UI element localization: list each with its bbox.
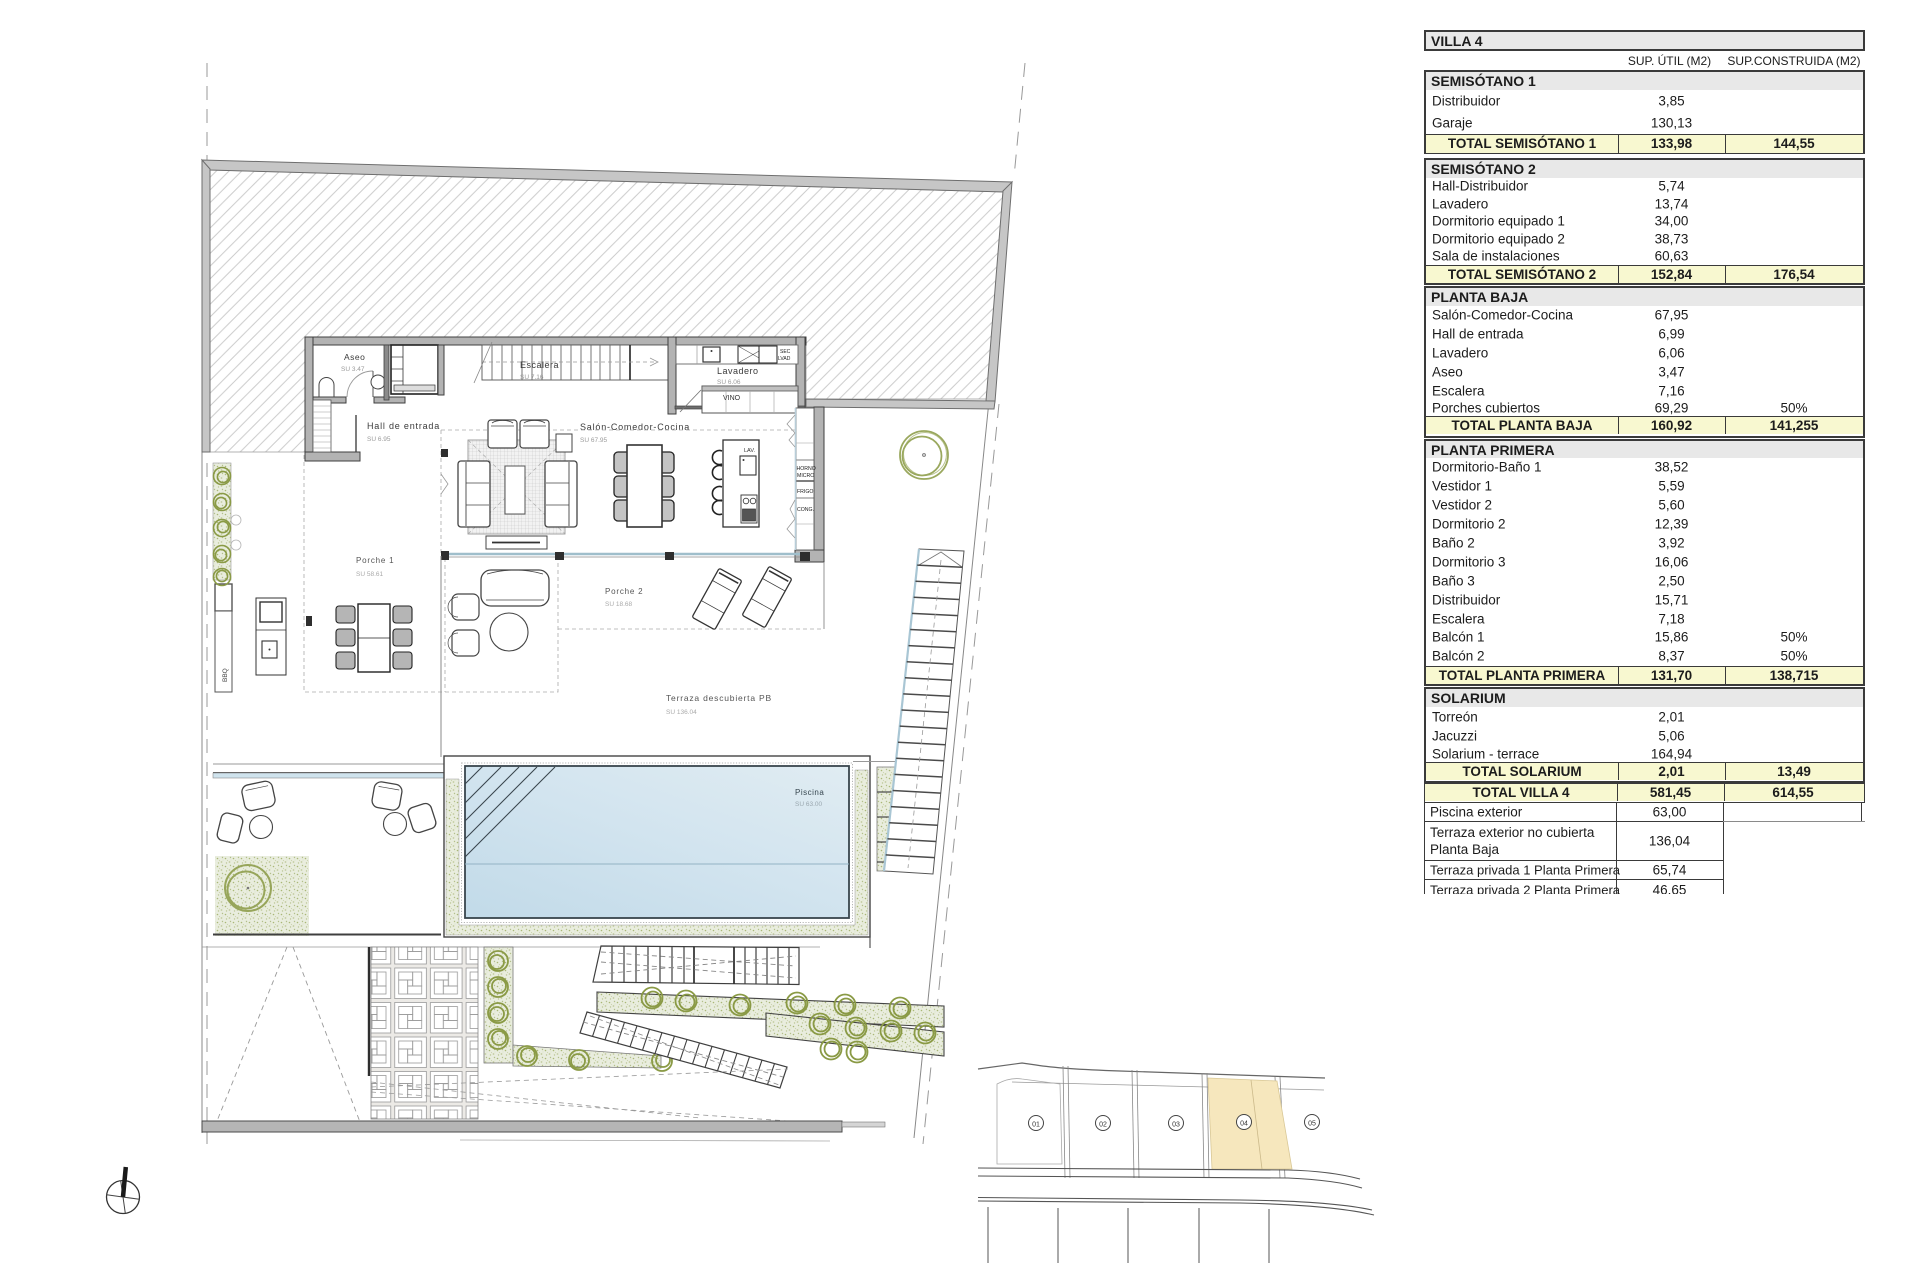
svg-text:SU 18.68: SU 18.68 xyxy=(605,601,632,608)
svg-text:Escalera: Escalera xyxy=(520,360,559,370)
svg-text:LVAD: LVAD xyxy=(778,356,791,362)
svg-text:02: 02 xyxy=(1099,1122,1107,1129)
svg-text:SU 136.04: SU 136.04 xyxy=(666,709,697,716)
svg-text:BBQ: BBQ xyxy=(222,668,229,682)
svg-text:01: 01 xyxy=(1032,1122,1040,1129)
svg-text:LAV.: LAV. xyxy=(744,448,755,454)
svg-text:Piscina: Piscina xyxy=(795,788,824,797)
svg-text:SU 6.06: SU 6.06 xyxy=(717,379,741,386)
svg-text:VINO: VINO xyxy=(723,395,741,402)
svg-text:Porche 1: Porche 1 xyxy=(356,556,394,565)
svg-text:Hall de entrada: Hall de entrada xyxy=(367,421,440,431)
svg-text:SU 58.61: SU 58.61 xyxy=(356,571,383,578)
svg-text:SU 67.95: SU 67.95 xyxy=(580,437,607,444)
svg-text:Aseo: Aseo xyxy=(344,352,365,362)
svg-text:SEC: SEC xyxy=(780,349,791,355)
svg-text:05: 05 xyxy=(1308,1121,1316,1128)
svg-text:SU 6.95: SU 6.95 xyxy=(367,436,391,443)
svg-text:Porche 2: Porche 2 xyxy=(605,587,643,596)
svg-text:Lavadero: Lavadero xyxy=(717,366,759,376)
svg-text:SU 63.00: SU 63.00 xyxy=(795,801,822,808)
svg-text:Salón-Comedor-Cocina: Salón-Comedor-Cocina xyxy=(580,422,690,432)
svg-text:CONG.: CONG. xyxy=(797,507,814,513)
svg-text:SU 3.47: SU 3.47 xyxy=(341,366,365,373)
svg-text:04: 04 xyxy=(1240,1121,1248,1128)
svg-text:03: 03 xyxy=(1172,1122,1180,1129)
svg-text:HORNO: HORNO xyxy=(797,466,816,472)
svg-text:SU 7.16: SU 7.16 xyxy=(520,374,544,381)
svg-text:MICRO: MICRO xyxy=(797,473,814,479)
svg-text:FRIGO: FRIGO xyxy=(797,489,813,495)
svg-text:Terraza descubierta PB: Terraza descubierta PB xyxy=(666,693,772,703)
